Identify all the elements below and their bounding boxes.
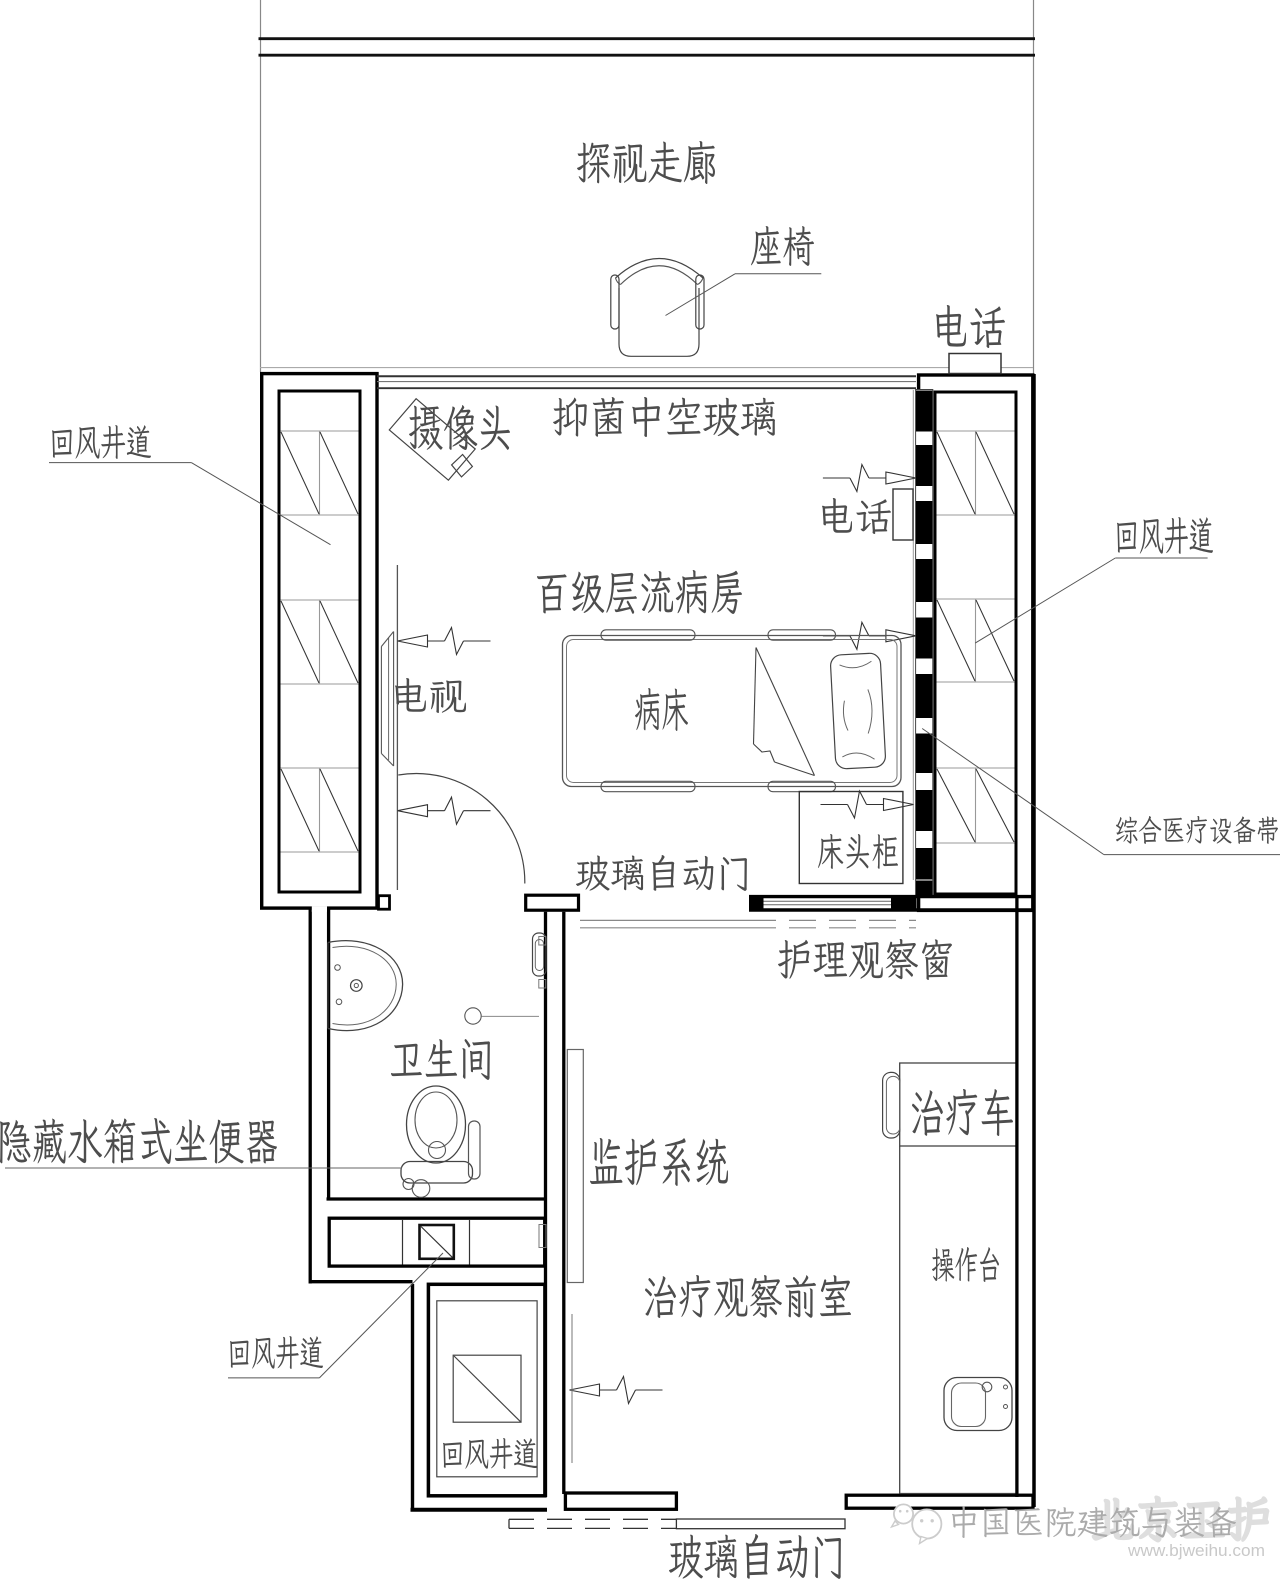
svg-text:www.bjweihu.com: www.bjweihu.com (1127, 1541, 1265, 1560)
